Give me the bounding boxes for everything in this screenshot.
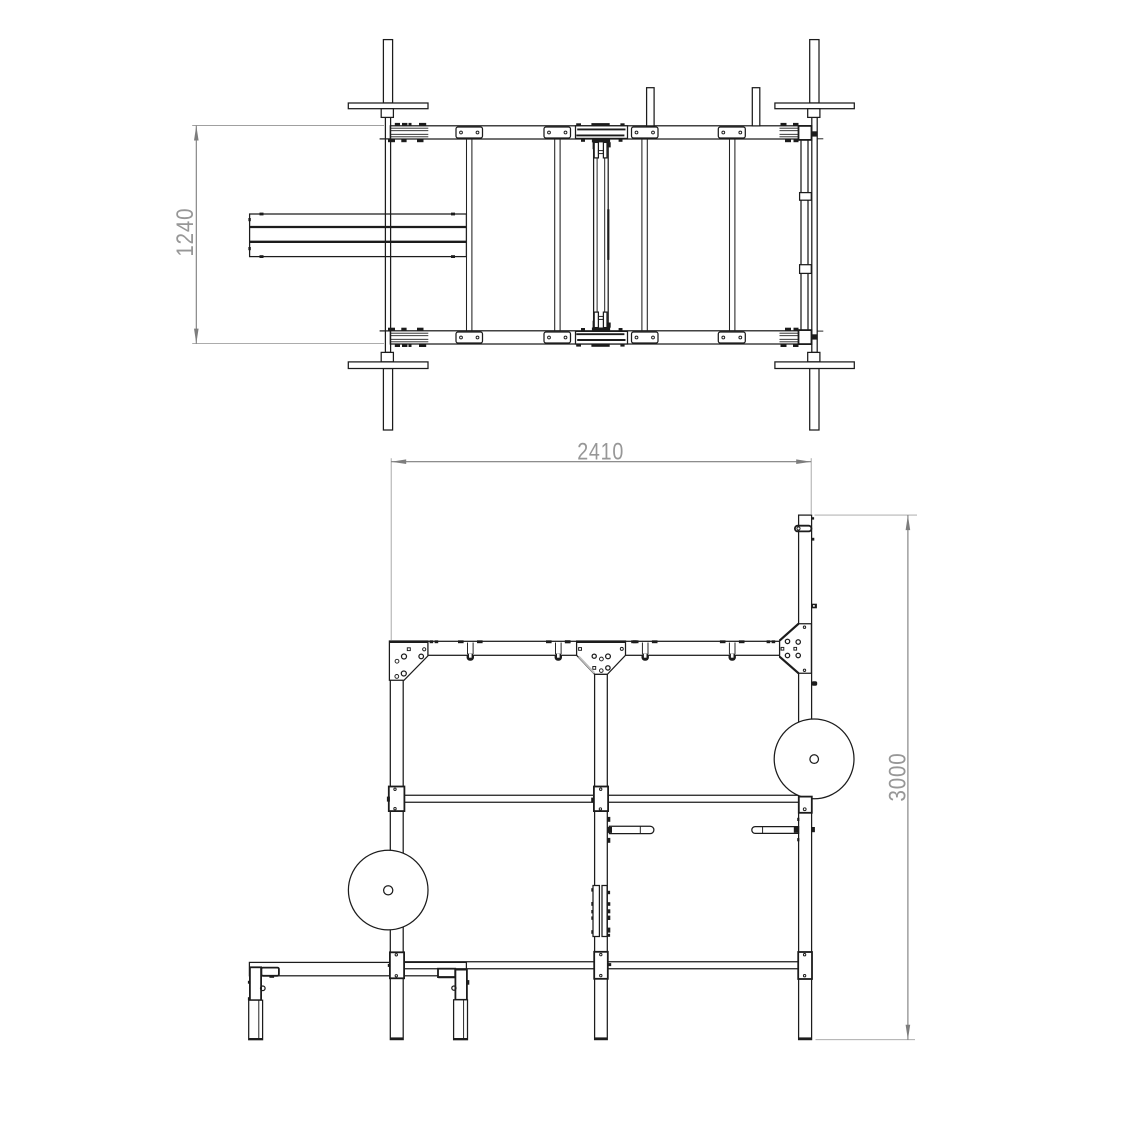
svg-text:1240: 1240 [172, 208, 199, 257]
svg-text:2410: 2410 [577, 439, 624, 466]
svg-text:3000: 3000 [884, 753, 911, 802]
